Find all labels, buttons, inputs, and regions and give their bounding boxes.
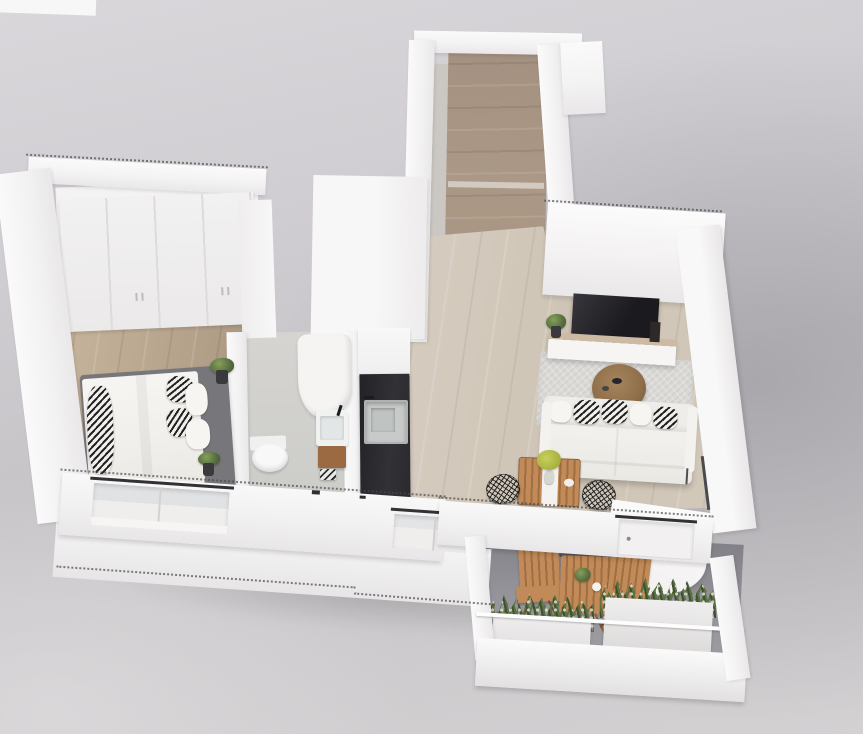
bedroom-bathroom-partition-upper — [238, 199, 277, 338]
bedroom-plant-pot — [216, 370, 228, 384]
door-handle — [627, 537, 631, 541]
bedroom-wardrobe — [59, 192, 259, 332]
kitchen-upper-cabinet — [358, 328, 410, 376]
balcony-door — [617, 519, 695, 560]
door-stop-tick — [312, 490, 320, 495]
sofa-white-pillow — [629, 403, 652, 426]
bedroom-window — [91, 483, 230, 534]
bed-white-pillow — [185, 418, 211, 450]
bedroom-plant-pot — [203, 463, 214, 476]
kitchen-faucet — [364, 396, 374, 399]
wardrobe-handle — [227, 287, 229, 295]
wardrobe-handle — [221, 287, 223, 295]
console-plant-pot — [551, 326, 561, 338]
sink-bowl — [320, 416, 344, 440]
coffee-table-decor — [612, 378, 622, 384]
patterned-basket — [320, 469, 336, 480]
door-stop-tick — [360, 495, 366, 498]
coffee-table-decor — [602, 386, 609, 391]
bed-patterned-bolster — [86, 386, 115, 475]
shower-enclosure — [297, 334, 352, 419]
flower-vase — [544, 470, 554, 484]
dining-table — [517, 457, 581, 507]
window-mullion — [432, 517, 436, 551]
apartment-floor-plan-render — [0, 0, 863, 734]
wardrobe-handle — [135, 293, 137, 301]
yellow-flowers — [536, 450, 561, 471]
kitchen-sink-tub — [371, 408, 395, 432]
bed-white-pillow — [184, 382, 208, 415]
bathroom-sink-basin — [316, 410, 348, 446]
sofa-white-pillow — [549, 400, 572, 423]
entry-wall-stub — [560, 41, 606, 115]
sofa-patterned-pillow — [653, 406, 678, 429]
wardrobe-handle — [141, 293, 143, 301]
kitchen-sink — [364, 400, 408, 444]
sofa-patterned-pillow — [601, 399, 628, 425]
speaker — [649, 322, 660, 342]
table-plant — [574, 568, 590, 583]
bathroom-hallway-wall-face — [311, 175, 428, 339]
sofa-patterned-pillow — [573, 399, 600, 425]
vanity-wood-cabinet — [318, 446, 346, 468]
